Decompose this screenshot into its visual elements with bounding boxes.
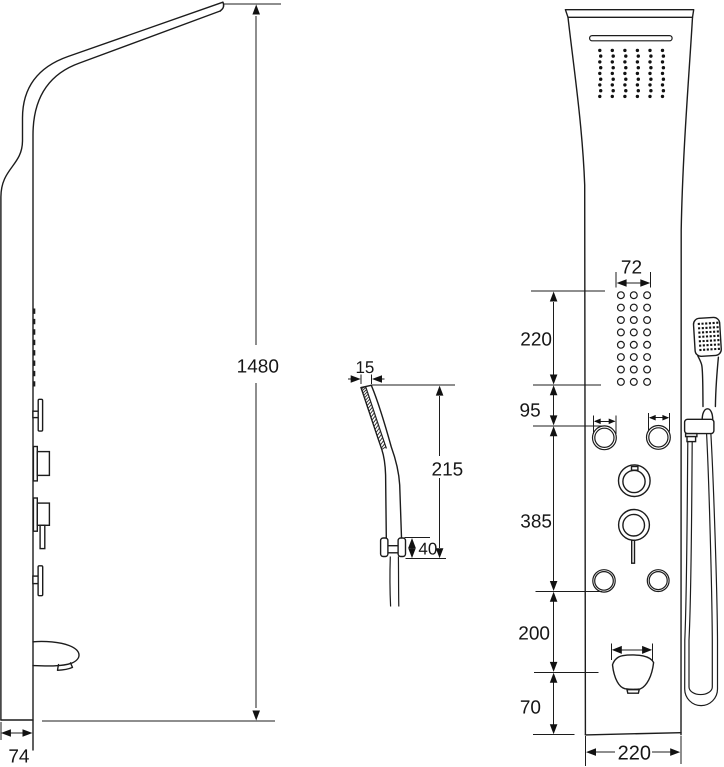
svg-text:40: 40 <box>418 540 437 559</box>
svg-text:385: 385 <box>520 511 552 532</box>
svg-text:220: 220 <box>618 743 651 765</box>
svg-text:15: 15 <box>355 358 374 377</box>
svg-text:220: 220 <box>520 329 552 350</box>
svg-text:200: 200 <box>518 624 550 645</box>
svg-text:95: 95 <box>520 401 541 422</box>
svg-text:215: 215 <box>432 459 464 480</box>
svg-text:1480: 1480 <box>237 357 279 378</box>
svg-text:70: 70 <box>520 698 541 719</box>
svg-text:74: 74 <box>8 746 30 767</box>
svg-text:72: 72 <box>621 258 642 279</box>
